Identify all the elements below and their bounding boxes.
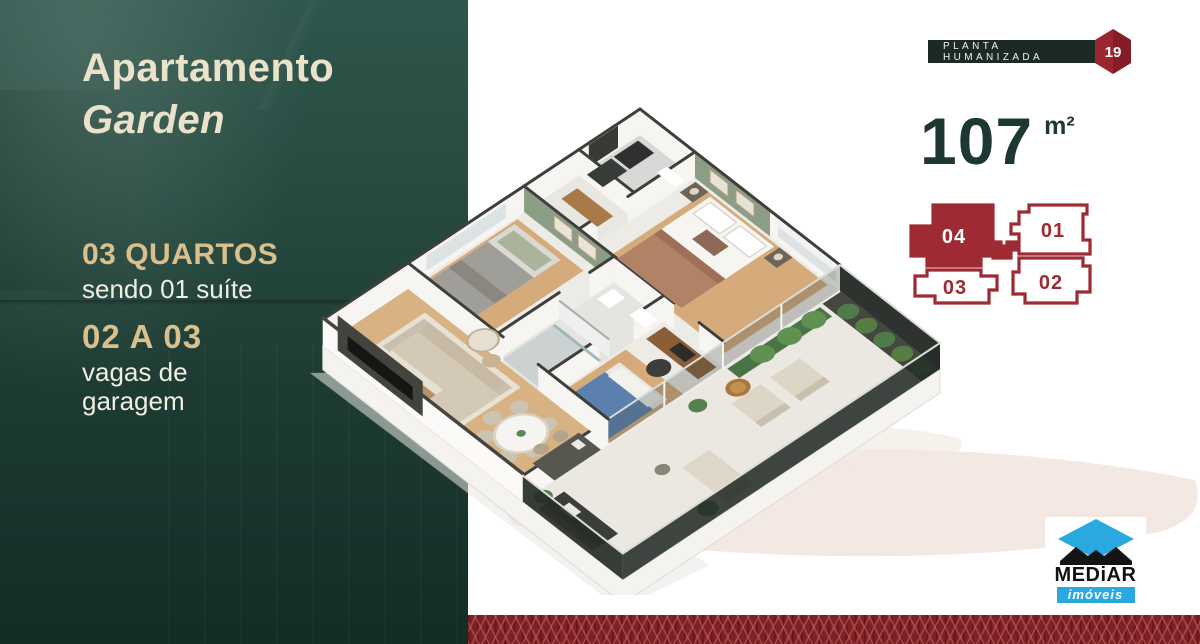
unit-01-label: 01 <box>1041 220 1065 242</box>
area-value: 107 <box>920 110 1033 172</box>
feature-bedrooms-title: 03 QUARTOS <box>82 238 278 272</box>
badge-number: 19 <box>1105 44 1122 61</box>
slide: Apartamento Garden 03 QUARTOS sendo 01 s… <box>0 0 1200 644</box>
title-line1: Apartamento <box>82 46 334 90</box>
area-unit: m² <box>1044 112 1075 141</box>
feature-parking-title: 02 A 03 <box>82 318 202 356</box>
area-display: 107 m² <box>920 110 1075 172</box>
unit-03-label: 03 <box>943 277 967 299</box>
mediar-logo-name: MEDiAR <box>1055 565 1137 585</box>
mediar-logo: MEDiAR imóveis <box>1045 517 1146 605</box>
left-panel: Apartamento Garden 03 QUARTOS sendo 01 s… <box>0 0 468 644</box>
unit-02-label: 02 <box>1039 272 1063 294</box>
feature-bedrooms-subtitle: sendo 01 suíte <box>82 274 253 305</box>
mediar-logo-icon <box>1046 517 1146 567</box>
feature-parking-subtitle: vagas de garagem <box>82 358 242 416</box>
title-line2: Garden <box>82 98 225 142</box>
planta-badge-label: PLANTA HUMANIZADA <box>928 41 1104 63</box>
unit-04-label: 04 <box>942 226 966 248</box>
interior-walls <box>498 150 724 399</box>
planta-badge: PLANTA HUMANIZADA <box>928 40 1104 63</box>
unit-position-diagram: 04 03 01 02 <box>903 202 1095 310</box>
page-title: Apartamento Garden <box>82 42 334 146</box>
badge-hexagon-icon: 19 <box>1092 28 1134 75</box>
mediar-logo-tagline: imóveis <box>1057 587 1135 603</box>
bottom-pattern-strip <box>468 615 1200 644</box>
